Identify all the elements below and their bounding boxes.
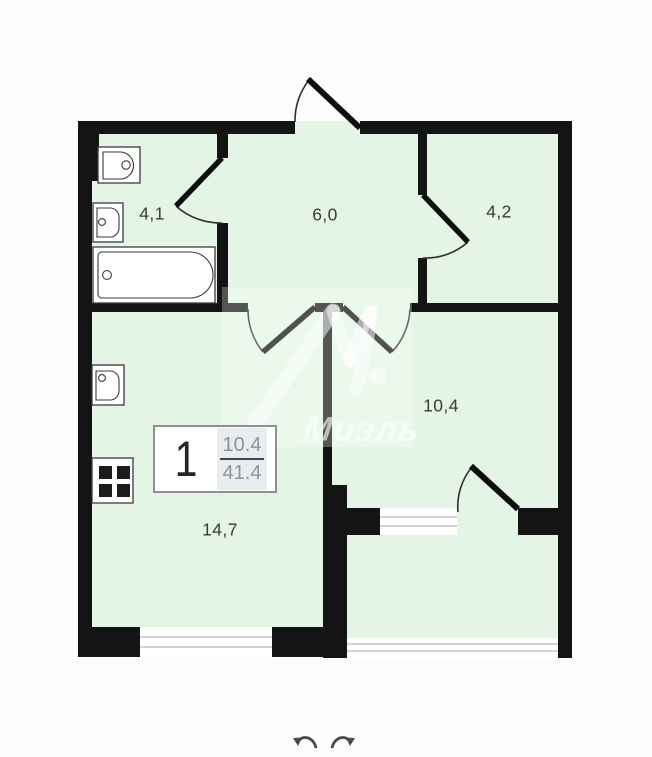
redo-icon-head	[346, 738, 355, 747]
storage-wall-lower	[418, 258, 427, 312]
washbasin-icon	[93, 203, 123, 242]
room-label-bedroom: 10,4	[423, 396, 459, 417]
floor-plan-canvas: Миэль 4,1 6,0 4,2 10,4 14,7 1 10.4 41.4	[0, 0, 652, 757]
bathtub-icon	[93, 247, 215, 303]
stove-burner	[117, 466, 130, 479]
bathtub-drain	[103, 271, 112, 280]
bathroom-wall-upper	[217, 134, 228, 158]
entrance-door	[295, 79, 360, 128]
storage-wall-upper	[418, 134, 427, 195]
stove-burner	[99, 484, 112, 497]
top-wall-left	[78, 121, 295, 134]
toilet-icon	[98, 147, 140, 183]
balcony-glazing-frame	[347, 638, 558, 658]
toilet-button	[122, 161, 130, 169]
undo-icon[interactable]	[293, 737, 316, 748]
room-label-storage: 4,2	[486, 202, 512, 223]
top-wall-right	[360, 121, 572, 134]
kitchen-sink-drain	[99, 375, 106, 382]
bedroom-bottom-wall-right	[518, 508, 558, 535]
left-wall	[78, 121, 92, 657]
bathtub-basin	[98, 252, 213, 298]
entrance-door-leaf	[308, 79, 360, 128]
entrance-door-arc	[295, 80, 309, 122]
stove-burner	[117, 484, 130, 497]
kitchen-balcony-wall-thick	[323, 485, 347, 658]
entrance-gap-fill	[295, 121, 360, 134]
balcony-glazing	[347, 638, 558, 658]
total-area-value: 41.4	[223, 462, 262, 484]
rotate-controls	[293, 737, 355, 748]
redo-icon[interactable]	[332, 737, 355, 748]
room-label-hallway: 6,0	[312, 205, 338, 226]
room-label-kitchen-living: 14,7	[202, 520, 238, 541]
bedroom-window-frame	[380, 508, 457, 535]
watermark-text: Миэль	[301, 411, 423, 450]
undo-icon-head	[293, 738, 302, 747]
bottom-wall-left	[78, 627, 140, 657]
balcony-fill	[347, 627, 558, 638]
fraction-divider	[220, 458, 264, 460]
washbasin-drain	[99, 219, 106, 226]
bedroom-bottom-wall-left	[347, 508, 380, 535]
apartment-info-box: 1 10.4 41.4	[153, 425, 277, 493]
bedroom-window	[380, 508, 457, 535]
right-wall	[558, 121, 572, 658]
stove-icon	[92, 458, 133, 503]
kitchen-sink-icon	[92, 365, 124, 405]
kitchen-window	[140, 627, 272, 657]
partition-hall-bottom-right	[410, 303, 558, 312]
stove-burner	[99, 466, 112, 479]
kitchen-window-frame	[140, 627, 272, 657]
room-label-bathroom: 4,1	[139, 204, 165, 225]
area-fraction: 10.4 41.4	[217, 428, 267, 490]
living-area-value: 10.4	[223, 434, 262, 456]
room-count: 1	[161, 434, 212, 484]
